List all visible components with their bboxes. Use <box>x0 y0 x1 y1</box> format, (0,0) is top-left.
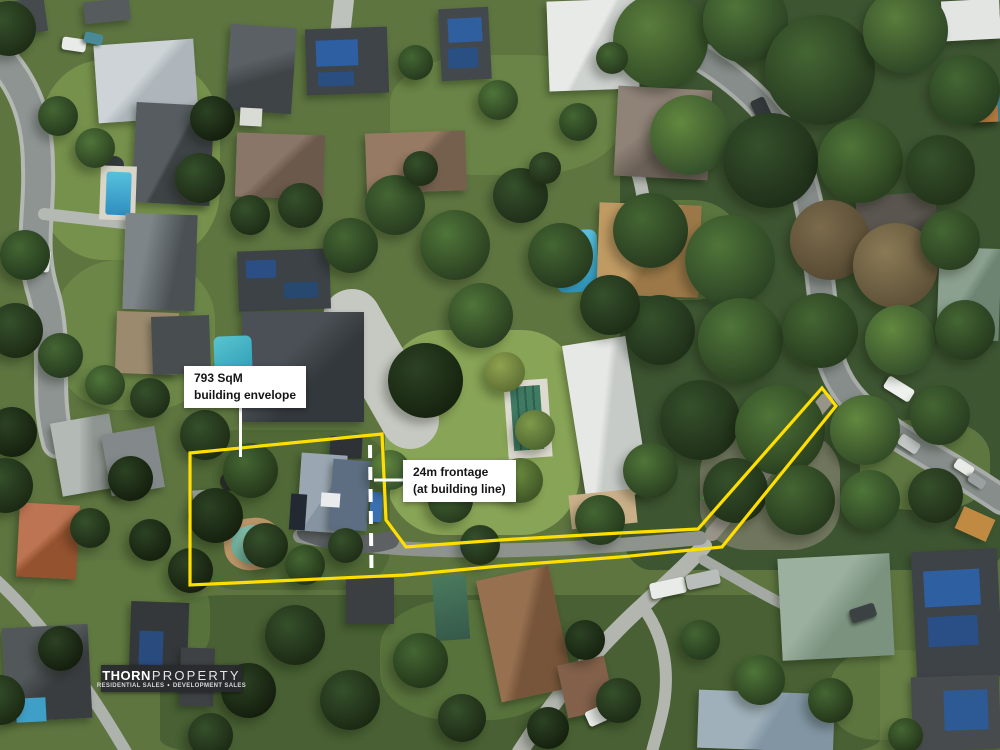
brand-logo-name: THORNPROPERTY <box>102 669 241 682</box>
frontage-dash-line <box>370 445 372 572</box>
envelope-label: 793 SqM building envelope <box>184 366 306 408</box>
tagline-separator-dot: • <box>167 683 169 689</box>
tagline-left: RESIDENTIAL SALES <box>97 683 165 689</box>
frontage-label-line2: (at building line) <box>413 481 506 498</box>
envelope-label-line2: building envelope <box>194 387 296 404</box>
brand-logo: THORNPROPERTY RESIDENTIAL SALES•DEVELOPM… <box>101 665 242 692</box>
frontage-label: 24m frontage (at building line) <box>403 460 516 502</box>
brand-logo-light: PROPERTY <box>152 668 241 683</box>
brand-logo-bold: THORN <box>102 668 151 683</box>
frontage-label-line1: 24m frontage <box>413 464 506 481</box>
brand-logo-tagline: RESIDENTIAL SALES•DEVELOPMENT SALES <box>97 683 246 689</box>
envelope-label-line1: 793 SqM <box>194 370 296 387</box>
tagline-right: DEVELOPMENT SALES <box>173 683 246 689</box>
aerial-photo: 793 SqM building envelope 24m frontage (… <box>0 0 1000 750</box>
annotations-layer <box>0 0 1000 750</box>
